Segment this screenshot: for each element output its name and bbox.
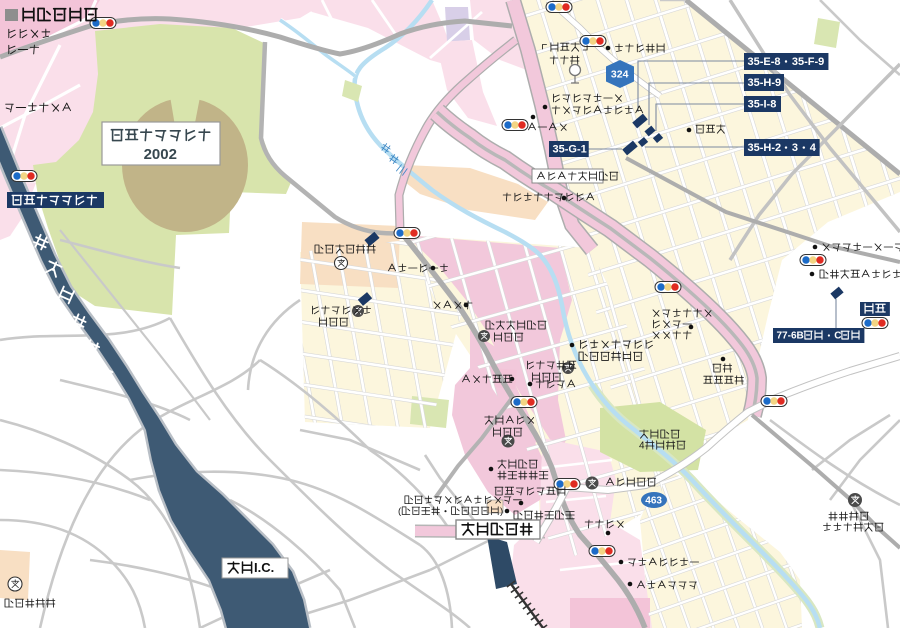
svg-text:I.C.: I.C. bbox=[254, 560, 274, 575]
svg-text:35-E-8: 35-E-8 bbox=[748, 56, 781, 68]
svg-text:35-F-9: 35-F-9 bbox=[792, 56, 824, 68]
svg-text:35-H-9: 35-H-9 bbox=[748, 77, 782, 89]
svg-text:35-H-2: 35-H-2 bbox=[748, 142, 782, 154]
svg-text:4: 4 bbox=[639, 441, 645, 452]
svg-text:C: C bbox=[834, 331, 841, 342]
svg-text:35-I-8: 35-I-8 bbox=[748, 98, 777, 110]
svg-text:77-6B: 77-6B bbox=[777, 331, 804, 342]
svg-text:4: 4 bbox=[810, 142, 817, 154]
svg-text:35-G-1: 35-G-1 bbox=[553, 143, 587, 155]
svg-text:3: 3 bbox=[792, 142, 798, 154]
svg-text:463: 463 bbox=[645, 496, 662, 507]
svg-text:): ) bbox=[500, 506, 503, 517]
svg-text:324: 324 bbox=[611, 68, 629, 80]
svg-text:2002: 2002 bbox=[144, 146, 177, 163]
